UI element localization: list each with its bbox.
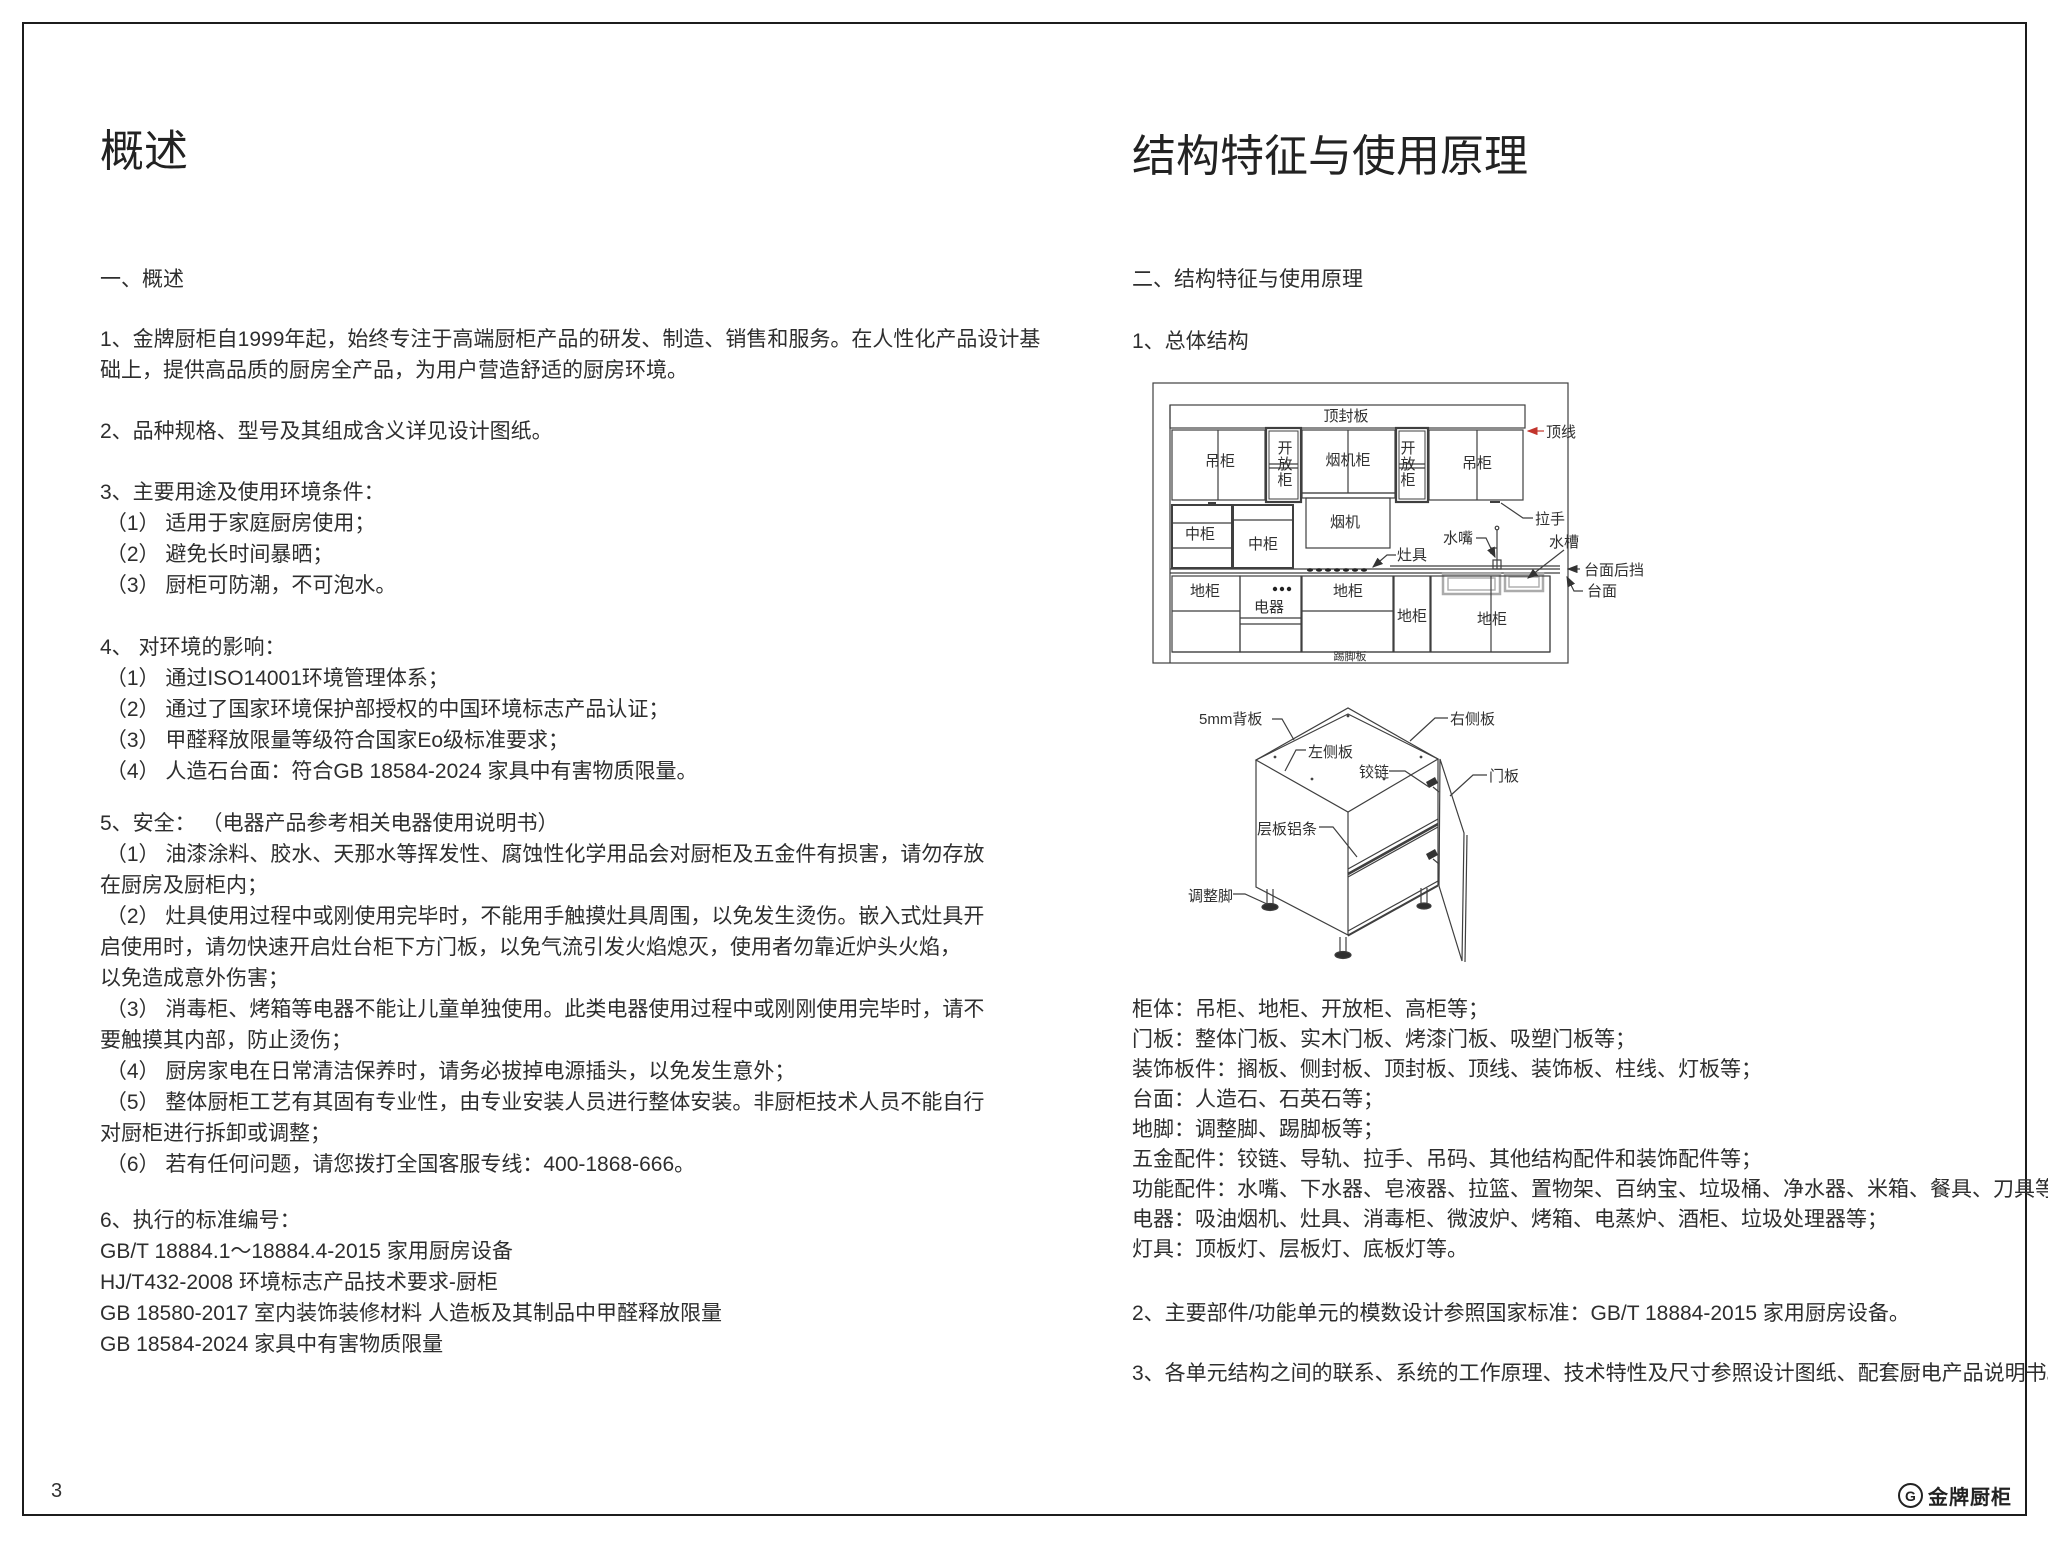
text-line: （4） 人造石台面：符合GB 18584-2024 家具中有害物质限量。 bbox=[100, 756, 1010, 787]
right-item-2: 2、主要部件/功能单元的模数设计参照国家标准：GB/T 18884-2015 家… bbox=[1132, 1298, 2042, 1329]
text-line: （1） 通过ISO14001环境管理体系； bbox=[100, 663, 1010, 694]
text-line: GB/T 18884.1～18884.4-2015 家用厨房设备 bbox=[100, 1236, 1010, 1267]
label-base-cabinet-4: 地柜 bbox=[1477, 611, 1507, 628]
right-item-3: 3、各单元结构之间的联系、系统的工作原理、技术特性及尺寸参照设计图纸、配套厨电产… bbox=[1132, 1358, 2042, 1389]
label-handle: 拉手 bbox=[1535, 511, 1565, 528]
text-line: 1、金牌厨柜自1999年起，始终专注于高端厨柜产品的研发、制造、销售和服务。在人… bbox=[100, 324, 1010, 355]
label-hinge: 铰链 bbox=[1359, 764, 1389, 781]
label-countertop: 台面 bbox=[1587, 583, 1617, 600]
appliance-knobs bbox=[1273, 587, 1291, 591]
sink-glyph bbox=[1443, 574, 1543, 594]
cabinet-door bbox=[1439, 759, 1467, 962]
label-right-side-panel: 右侧板 bbox=[1450, 711, 1495, 728]
label-wall-cabinet-right: 吊柜 bbox=[1462, 455, 1492, 472]
left-paragraph-1: 1、金牌厨柜自1999年起，始终专注于高端厨柜产品的研发、制造、销售和服务。在人… bbox=[100, 324, 1010, 386]
label-base-cabinet-1: 地柜 bbox=[1190, 583, 1220, 600]
text-line: 以免造成意外伤害； bbox=[100, 963, 1010, 994]
kitchen-elevation-diagram: 顶封板 顶线 吊柜 开放柜 烟机柜 开放柜 吊柜 拉手 中柜 中柜 烟机 水嘴 … bbox=[1140, 380, 1720, 670]
cabinet-structure-svg bbox=[1175, 695, 1555, 1010]
label-kickboard: 踢脚板 bbox=[1334, 651, 1367, 663]
text-line: 2、品种规格、型号及其组成含义详见设计图纸。 bbox=[100, 416, 1010, 447]
label-counter-backsplash: 台面后挡 bbox=[1584, 562, 1644, 579]
text-line: （5） 整体厨柜工艺有其固有专业性，由专业安装人员进行整体安装。非厨柜技术人员不… bbox=[100, 1087, 1010, 1118]
left-page-title: 概述 bbox=[100, 115, 188, 179]
left-paragraph-6: 6、执行的标准编号：GB/T 18884.1～18884.4-2015 家用厨房… bbox=[100, 1205, 1010, 1360]
text-line: 3、主要用途及使用环境条件： bbox=[100, 477, 1010, 508]
text-line: 要触摸其内部，防止烫伤； bbox=[100, 1025, 1010, 1056]
label-back-panel: 5mm背板 bbox=[1199, 711, 1262, 728]
text-line: 二、结构特征与使用原理 bbox=[1132, 264, 2042, 295]
text-line: 6、执行的标准编号： bbox=[100, 1205, 1010, 1236]
label-open-cabinet-right: 开放柜 bbox=[1399, 440, 1416, 488]
label-mid-cabinet-1: 中柜 bbox=[1185, 526, 1215, 543]
left-paragraph-4: 4、 对环境的影响： （1） 通过ISO14001环境管理体系； （2） 通过了… bbox=[100, 632, 1010, 787]
text-line: 础上，提供高品质的厨房全产品，为用户营造舒适的厨房环境。 bbox=[100, 355, 1010, 386]
text-line: 在厨房及厨柜内； bbox=[100, 870, 1010, 901]
label-base-cabinet-3: 地柜 bbox=[1397, 608, 1427, 625]
text-line: （1） 适用于家庭厨房使用； bbox=[100, 508, 1010, 539]
label-sink: 水槽 bbox=[1549, 534, 1579, 551]
text-line: 启使用时，请勿快速开启灶台柜下方门板，以免气流引发火焰熄灭，使用者勿靠近炉头火焰… bbox=[100, 932, 1010, 963]
left-paragraph-2: 2、品种规格、型号及其组成含义详见设计图纸。 bbox=[100, 416, 1010, 447]
text-line: 台面：人造石、石英石等； bbox=[1132, 1085, 2042, 1115]
label-mid-cabinet-2: 中柜 bbox=[1248, 536, 1278, 553]
text-line: （1） 油漆涂料、胶水、天那水等挥发性、腐蚀性化学用品会对厨柜及五金件有损害，请… bbox=[100, 839, 1010, 870]
label-open-cabinet-left: 开放柜 bbox=[1276, 440, 1293, 488]
component-list: 柜体：吊柜、地柜、开放柜、高柜等；门板：整体门板、实木门板、烤漆门板、吸塑门板等… bbox=[1132, 995, 2042, 1265]
brand-g-icon: G bbox=[1898, 1483, 1923, 1508]
text-line: （6） 若有任何问题，请您拨打全国客服专线：400-1868-666。 bbox=[100, 1149, 1010, 1180]
label-faucet: 水嘴 bbox=[1443, 530, 1473, 547]
page-number: 3 bbox=[51, 1480, 62, 1503]
label-shelf-strip: 层板铝条 bbox=[1257, 821, 1317, 838]
right-section-heading: 二、结构特征与使用原理 bbox=[1132, 264, 2042, 295]
text-line: 电器：吸油烟机、灶具、消毒柜、微波炉、烤箱、电蒸炉、酒柜、垃圾处理器等； bbox=[1132, 1205, 2042, 1235]
text-line: 5、安全： （电器产品参考相关电器使用说明书） bbox=[100, 808, 1010, 839]
manual-page-spread: 概述 结构特征与使用原理 一、概述 1、金牌厨柜自1999年起，始终专注于高端厨… bbox=[0, 0, 2048, 1547]
text-line: 功能配件：水嘴、下水器、皂液器、拉篮、置物架、百纳宝、垃圾桶、净水器、米箱、餐具… bbox=[1132, 1175, 2042, 1205]
label-adjustable-feet: 调整脚 bbox=[1188, 888, 1233, 905]
text-line: 装饰板件：搁板、侧封板、顶封板、顶线、装饰板、柱线、灯板等； bbox=[1132, 1055, 2042, 1085]
text-line: 柜体：吊柜、地柜、开放柜、高柜等； bbox=[1132, 995, 2042, 1025]
brand-name: 金牌厨柜 bbox=[1928, 1481, 2012, 1510]
label-door-panel: 门板 bbox=[1489, 768, 1519, 785]
text-line: 一、概述 bbox=[100, 264, 1010, 295]
text-line: 五金配件：铰链、导轨、拉手、吊码、其他结构配件和装饰配件等； bbox=[1132, 1145, 2042, 1175]
text-line: （2） 避免长时间暴晒； bbox=[100, 539, 1010, 570]
text-line: 灯具：顶板灯、层板灯、底板灯等。 bbox=[1132, 1235, 2042, 1265]
label-appliance: 电器 bbox=[1254, 599, 1284, 616]
faucet-glyph bbox=[1491, 526, 1501, 569]
label-top-seal-board: 顶封板 bbox=[1323, 408, 1368, 425]
text-line: GB 18584-2024 家具中有害物质限量 bbox=[100, 1329, 1010, 1360]
brand-logo: G 金牌厨柜 bbox=[1898, 1481, 2012, 1510]
right-sub-heading: 1、总体结构 bbox=[1132, 326, 2042, 357]
text-line: （4） 厨房家电在日常清洁保养时，请务必拔掉电源插头，以免发生意外； bbox=[100, 1056, 1010, 1087]
text-line: 3、各单元结构之间的联系、系统的工作原理、技术特性及尺寸参照设计图纸、配套厨电产… bbox=[1132, 1358, 2042, 1389]
label-hood: 烟机 bbox=[1330, 514, 1360, 531]
text-line: （2） 灶具使用过程中或刚使用完毕时，不能用手触摸灶具周围，以免发生烫伤。嵌入式… bbox=[100, 901, 1010, 932]
text-line: 对厨柜进行拆卸或调整； bbox=[100, 1118, 1010, 1149]
label-wall-cabinet-left: 吊柜 bbox=[1205, 453, 1235, 470]
left-paragraph-3: 3、主要用途及使用环境条件： （1） 适用于家庭厨房使用； （2） 避免长时间暴… bbox=[100, 477, 1010, 601]
label-hood-cabinet: 烟机柜 bbox=[1325, 452, 1370, 469]
text-line: （3） 厨柜可防潮，不可泡水。 bbox=[100, 570, 1010, 601]
text-line: 门板：整体门板、实木门板、烤漆门板、吸塑门板等； bbox=[1132, 1025, 2042, 1055]
kitchen-elevation-svg bbox=[1140, 380, 1720, 670]
text-line: 2、主要部件/功能单元的模数设计参照国家标准：GB/T 18884-2015 家… bbox=[1132, 1298, 2042, 1329]
label-stove: 灶具 bbox=[1397, 547, 1427, 564]
label-top-line: 顶线 bbox=[1546, 424, 1576, 441]
text-line: 1、总体结构 bbox=[1132, 326, 2042, 357]
text-line: 地脚：调整脚、踢脚板等； bbox=[1132, 1115, 2042, 1145]
cabinet-structure-diagram: 5mm背板 右侧板 左侧板 铰链 门板 层板铝条 调整脚 bbox=[1175, 695, 1555, 1010]
left-paragraph-5: 5、安全： （电器产品参考相关电器使用说明书） （1） 油漆涂料、胶水、天那水等… bbox=[100, 808, 1010, 1180]
text-line: 4、 对环境的影响： bbox=[100, 632, 1010, 663]
label-base-cabinet-2: 地柜 bbox=[1333, 583, 1363, 600]
text-line: （3） 消毒柜、烤箱等电器不能让儿童单独使用。此类电器使用过程中或刚刚使用完毕时… bbox=[100, 994, 1010, 1025]
text-line: HJ/T432-2008 环境标志产品技术要求-厨柜 bbox=[100, 1267, 1010, 1298]
left-section-heading: 一、概述 bbox=[100, 264, 1010, 295]
right-page-title: 结构特征与使用原理 bbox=[1132, 120, 1528, 184]
label-left-side-panel: 左侧板 bbox=[1308, 744, 1353, 761]
leader-lines bbox=[1233, 718, 1487, 904]
text-line: GB 18580-2017 室内装饰装修材料 人造板及其制品中甲醛释放限量 bbox=[100, 1298, 1010, 1329]
text-line: （2） 通过了国家环境保护部授权的中国环境标志产品认证； bbox=[100, 694, 1010, 725]
text-line: （3） 甲醛释放限量等级符合国家Eo级标准要求； bbox=[100, 725, 1010, 756]
